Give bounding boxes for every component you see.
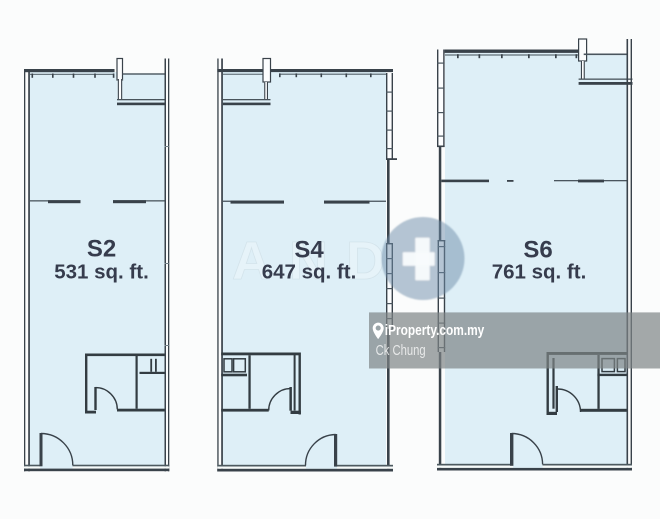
- svg-text:647 sq. ft.: 647 sq. ft.: [262, 261, 357, 284]
- svg-text:Ck Chung: Ck Chung: [376, 342, 426, 359]
- svg-text:S2: S2: [87, 236, 116, 263]
- svg-text:S4: S4: [294, 237, 324, 264]
- svg-text:761 sq. ft.: 761 sq. ft.: [492, 261, 587, 284]
- svg-text:S6: S6: [523, 237, 552, 264]
- svg-text:iProperty.com.my: iProperty.com.my: [385, 323, 485, 339]
- svg-text:531 sq. ft.: 531 sq. ft.: [54, 261, 149, 284]
